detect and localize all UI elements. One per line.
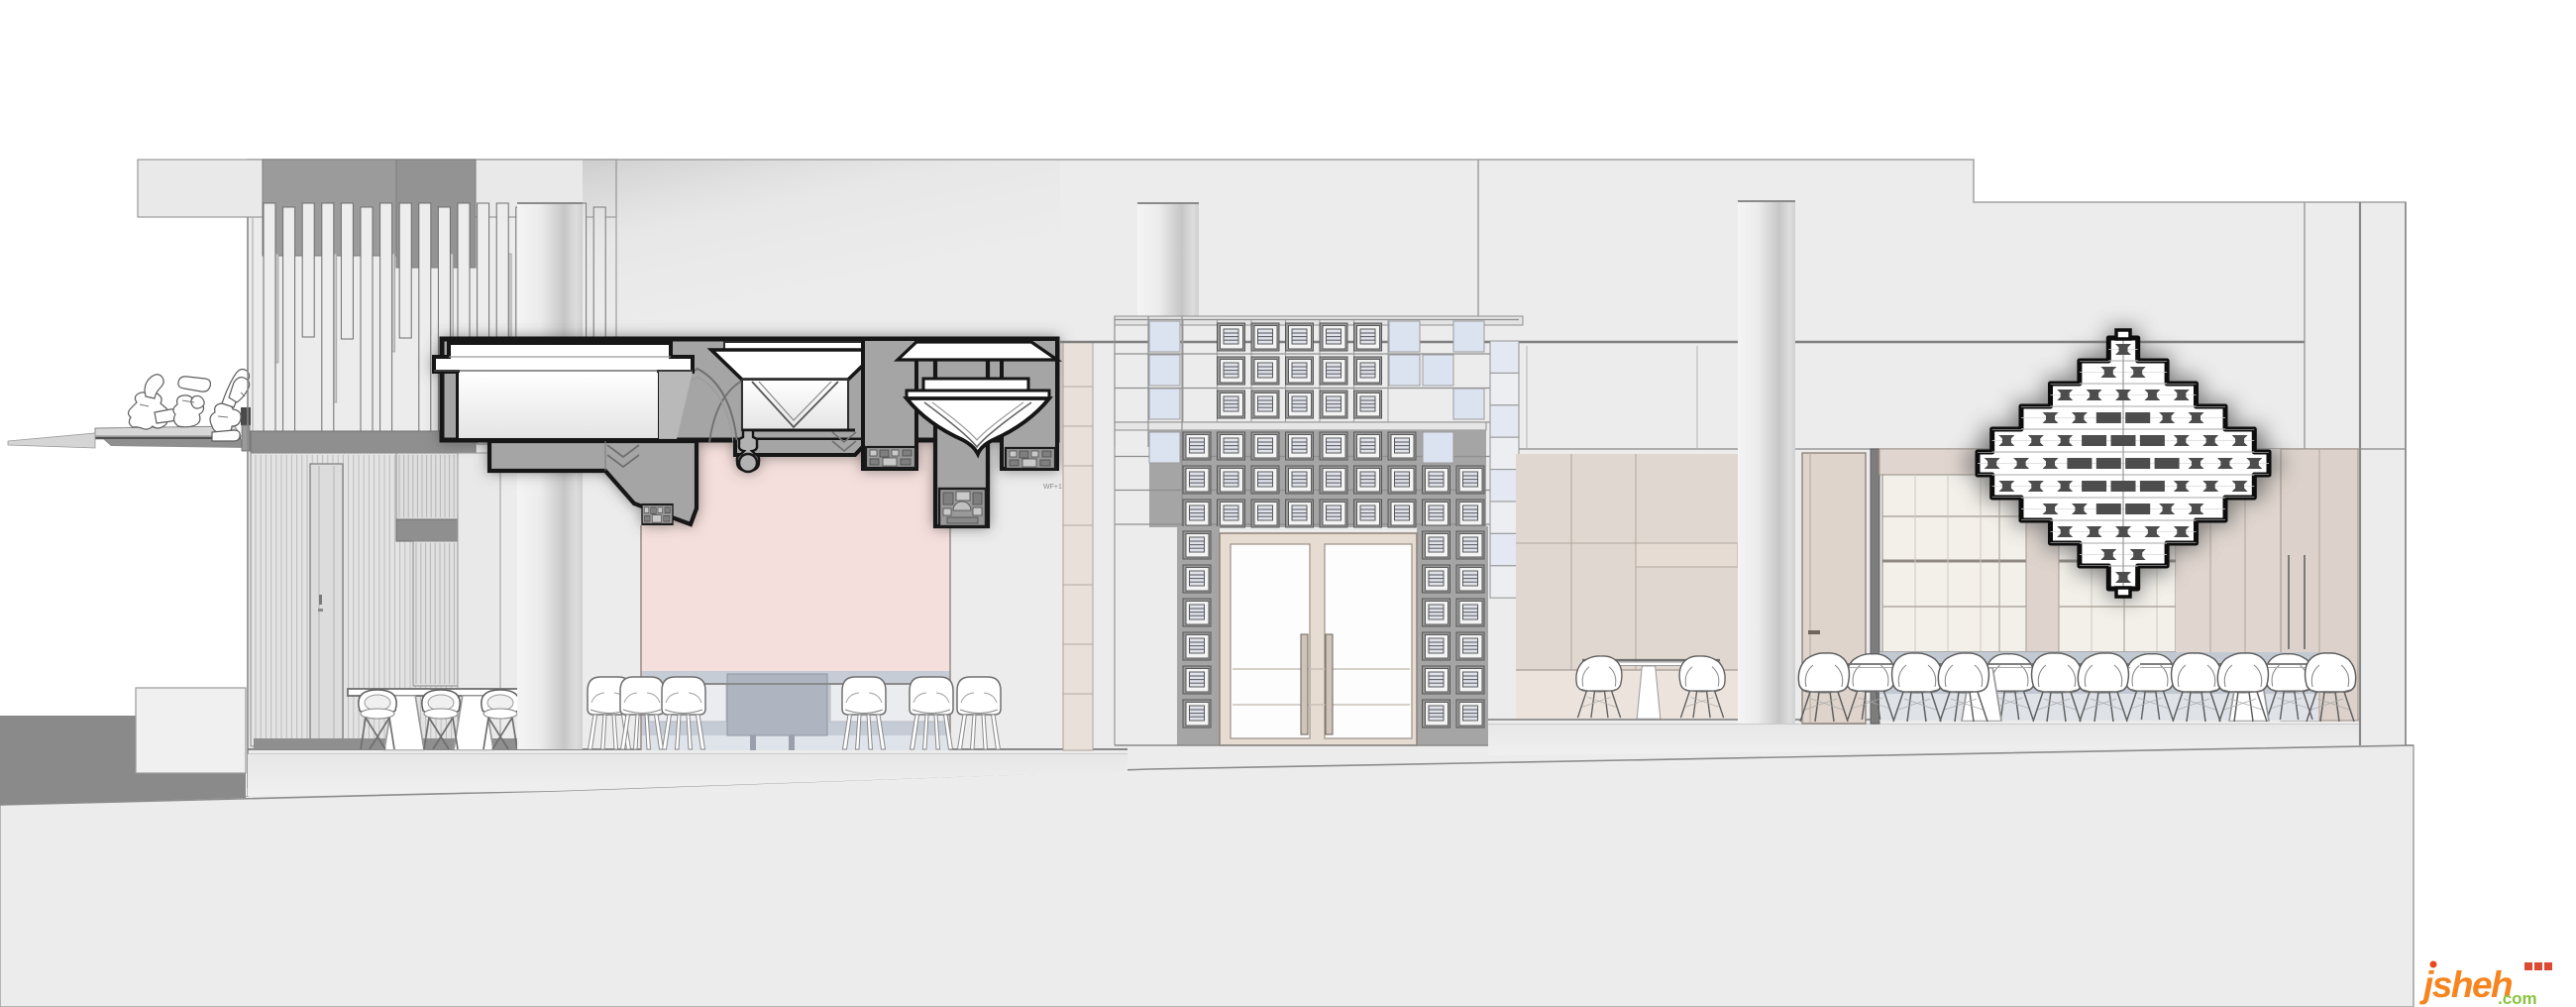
svg-text:.com: .com [2498, 989, 2537, 1007]
